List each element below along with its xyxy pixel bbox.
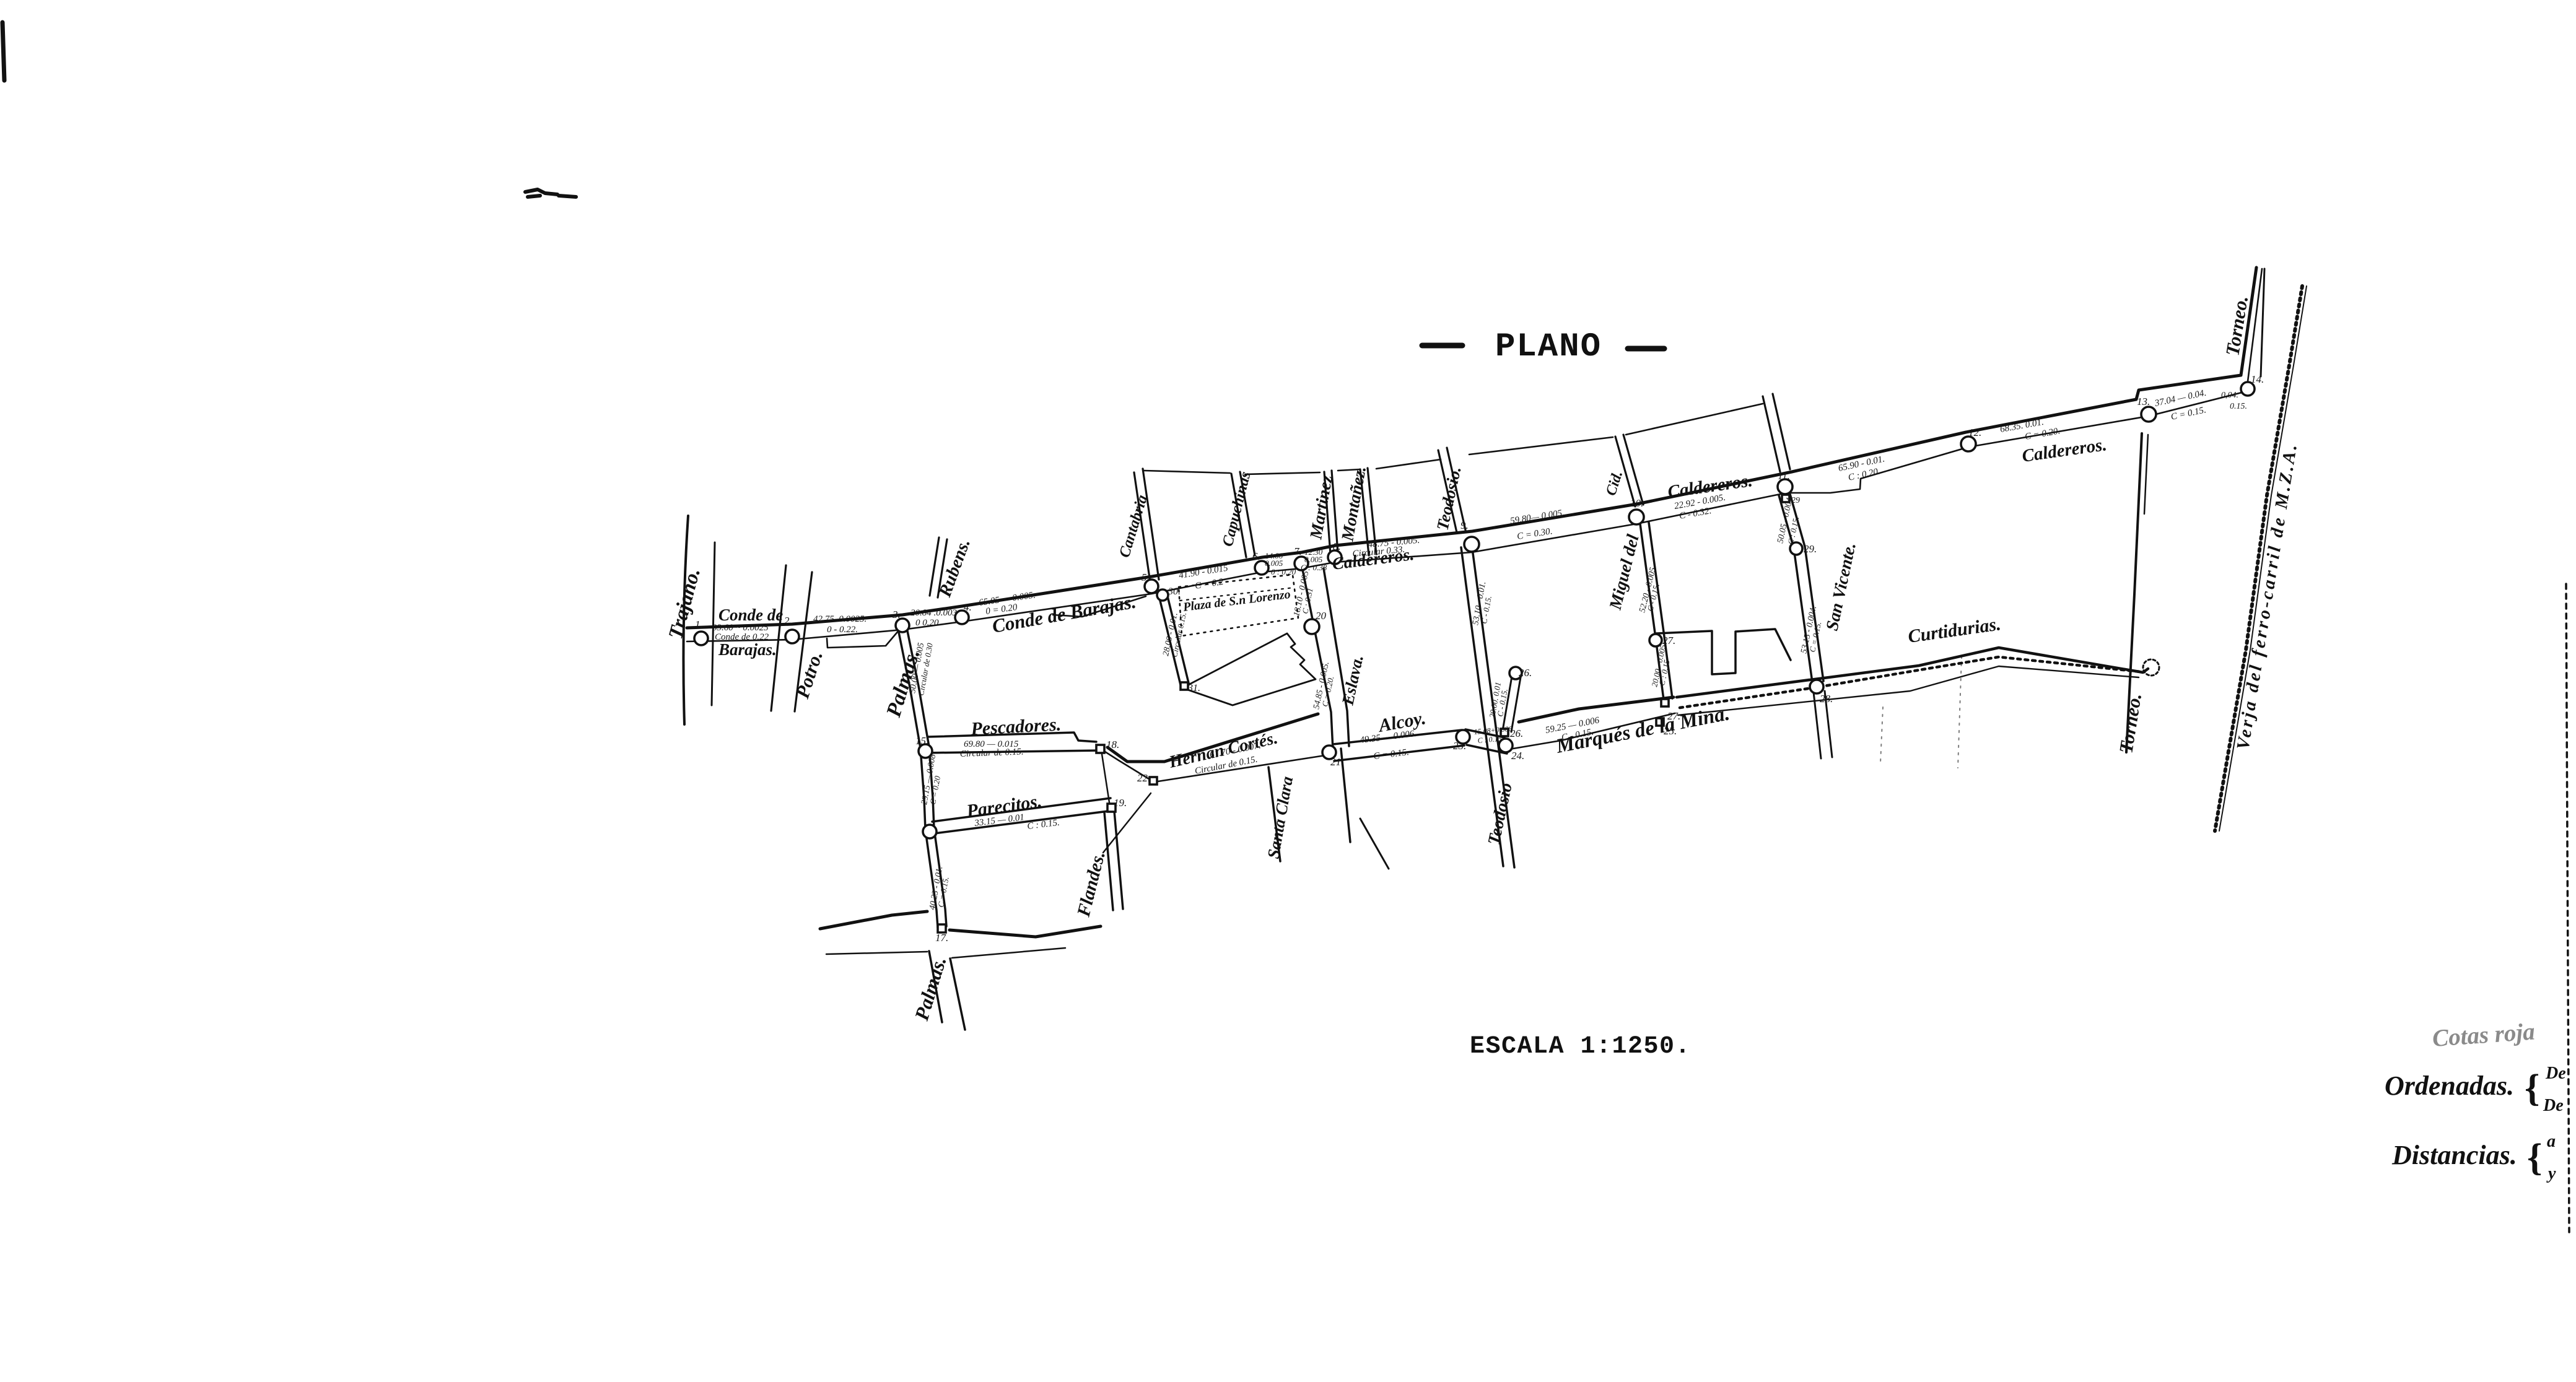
svg-text:Palmas.: Palmas. bbox=[910, 954, 951, 1023]
svg-text:28.: 28. bbox=[1820, 693, 1833, 705]
svg-text:{: { bbox=[2527, 1137, 2542, 1179]
svg-text:0 0.20.: 0 0.20. bbox=[915, 618, 941, 628]
svg-text:17.: 17. bbox=[935, 932, 948, 944]
svg-text:22.: 22. bbox=[1137, 772, 1150, 784]
svg-text:Potro.: Potro. bbox=[791, 648, 827, 702]
svg-text:Cotas roja: Cotas roja bbox=[2432, 1019, 2536, 1052]
svg-text:Conde de 0.22: Conde de 0.22 bbox=[715, 632, 769, 642]
svg-text:13.: 13. bbox=[2137, 396, 2150, 407]
svg-text:Montañez.: Montañez. bbox=[1338, 465, 1370, 544]
svg-text:Santa Clara: Santa Clara bbox=[1264, 775, 1296, 860]
svg-text:26.: 26. bbox=[1519, 667, 1532, 679]
svg-text:Flandes.: Flandes. bbox=[1073, 849, 1109, 919]
svg-text:23.: 23. bbox=[1453, 740, 1466, 752]
svg-text:8.: 8. bbox=[1333, 541, 1341, 552]
svg-text:0.15.: 0.15. bbox=[2230, 402, 2247, 411]
svg-text:14.: 14. bbox=[2251, 373, 2264, 385]
svg-text:25.: 25. bbox=[1664, 725, 1677, 737]
svg-text:1.: 1. bbox=[695, 619, 703, 630]
svg-text:42.75 .0.0025.: 42.75 .0.0025. bbox=[813, 614, 867, 624]
svg-text:18.: 18. bbox=[1106, 739, 1119, 750]
svg-text:10.: 10. bbox=[1630, 497, 1643, 509]
svg-text:Teodosio.: Teodosio. bbox=[1433, 465, 1465, 532]
svg-text:7.: 7. bbox=[1294, 545, 1302, 557]
svg-text:11.: 11. bbox=[1778, 470, 1790, 482]
svg-text:0,04.: 0,04. bbox=[2221, 391, 2238, 400]
svg-text:De: De bbox=[2543, 1096, 2564, 1115]
svg-text:Capuchinas: Capuchinas bbox=[1220, 470, 1254, 549]
svg-text:Teodosio: Teodosio bbox=[1485, 781, 1516, 847]
svg-text:C = 0.15.: C = 0.15. bbox=[2170, 405, 2207, 422]
svg-text:Miguel del: Miguel del bbox=[1605, 532, 1643, 612]
svg-text:C : 0.15.: C : 0.15. bbox=[1027, 818, 1060, 832]
svg-text:6.: 6. bbox=[1252, 550, 1260, 562]
svg-text:33.60 ~ 0.0025: 33.60 ~ 0.0025 bbox=[712, 623, 769, 633]
svg-text:3.: 3. bbox=[892, 609, 901, 620]
svg-text:5.: 5. bbox=[1142, 571, 1150, 583]
svg-text:Eslava.: Eslava. bbox=[1338, 653, 1367, 707]
svg-text:Rubens.: Rubens. bbox=[935, 536, 974, 601]
svg-text:De: De bbox=[2545, 1064, 2566, 1083]
svg-text:Ordenadas.: Ordenadas. bbox=[2385, 1071, 2514, 1101]
svg-text:Plaza de S.n Lorenzo: Plaza de S.n Lorenzo bbox=[1182, 588, 1291, 614]
svg-text:Conde de: Conde de bbox=[718, 606, 783, 624]
svg-text:C = 0.2: C = 0.2 bbox=[1194, 577, 1225, 591]
svg-text:0 : 0.20: 0 : 0.20 bbox=[1271, 567, 1296, 576]
svg-text:ESCALA 1:1250.: ESCALA 1:1250. bbox=[1470, 1033, 1691, 1061]
svg-text:0.005: 0.005 bbox=[1265, 558, 1283, 568]
svg-text:PLANO: PLANO bbox=[1495, 328, 1602, 366]
svg-text:Curtidurias.: Curtidurias. bbox=[1906, 614, 2002, 647]
svg-text:a: a bbox=[2547, 1132, 2556, 1151]
svg-text:24.: 24. bbox=[1511, 750, 1524, 762]
svg-text:27.: 27. bbox=[1662, 635, 1675, 646]
svg-text:Torneo.: Torneo. bbox=[2221, 294, 2252, 357]
svg-text:Distancias.: Distancias. bbox=[2391, 1140, 2517, 1170]
svg-text:4.: 4. bbox=[964, 601, 972, 613]
svg-text:27.: 27. bbox=[1667, 710, 1680, 722]
svg-text:21.: 21. bbox=[1330, 756, 1343, 768]
svg-text:29.: 29. bbox=[1804, 543, 1817, 555]
svg-text:Circular de 0.15.: Circular de 0.15. bbox=[960, 747, 1024, 759]
svg-text:9.: 9. bbox=[1460, 519, 1469, 531]
svg-text:30.: 30. bbox=[1168, 586, 1181, 597]
svg-text:37.04 — 0.04.: 37.04 — 0.04. bbox=[2154, 388, 2207, 409]
svg-text:{: { bbox=[2525, 1067, 2539, 1110]
svg-text:12.: 12. bbox=[1968, 427, 1981, 438]
svg-text:15.: 15. bbox=[915, 735, 928, 747]
svg-text:2.: 2. bbox=[784, 615, 792, 627]
svg-text:0 - 0.22.: 0 - 0.22. bbox=[827, 625, 858, 635]
svg-text:C = 0.15.: C = 0.15. bbox=[1373, 747, 1410, 762]
svg-text:San Vicente.: San Vicente. bbox=[1823, 541, 1860, 632]
svg-text:59.80— 0.005.: 59.80— 0.005. bbox=[1509, 508, 1565, 526]
svg-text:20: 20 bbox=[1316, 610, 1327, 622]
svg-text:Cid.: Cid. bbox=[1603, 469, 1626, 498]
svg-text:20.84 .0.003: 20.84 .0.003 bbox=[910, 608, 957, 618]
svg-text:Barajas.: Barajas. bbox=[718, 640, 777, 659]
svg-text:Torneo.: Torneo. bbox=[2115, 692, 2146, 755]
svg-text:19.: 19. bbox=[1114, 797, 1127, 809]
svg-text:Martinez: Martinez bbox=[1306, 474, 1337, 541]
svg-text:Pescadores.: Pescadores. bbox=[970, 714, 1062, 739]
svg-text:31.: 31. bbox=[1187, 683, 1200, 693]
svg-text:y: y bbox=[2546, 1164, 2556, 1183]
